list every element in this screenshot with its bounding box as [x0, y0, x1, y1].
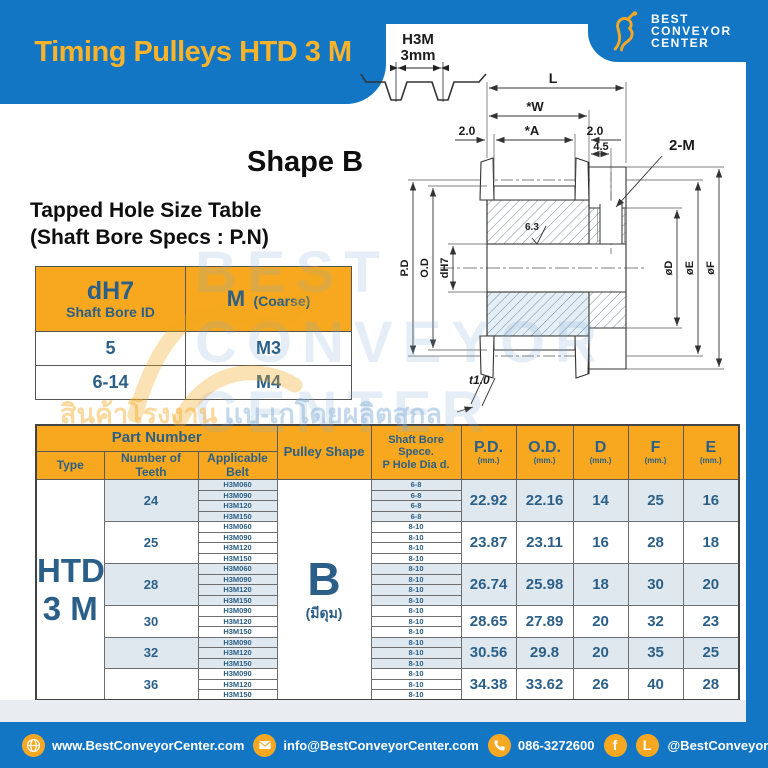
pd-value-cell: 23.87 [461, 522, 516, 564]
table-row: 5 M3 [36, 332, 352, 366]
bore-cell: 8-10 [371, 595, 461, 606]
tapped-hole-table: dH7 Shaft Bore ID M (Coarse) 5 M3 6-14 M… [35, 266, 352, 400]
bore-cell: 6-8 [371, 490, 461, 501]
dim-label-dia-f: øF [705, 261, 717, 275]
belt-cell: H3M090 [198, 606, 277, 617]
bore-cell: 8-10 [371, 669, 461, 680]
f-header: F(mm.) [628, 425, 683, 480]
tapped-col-thread-header: M (Coarse) [186, 267, 352, 332]
profile-name-label: H3M [402, 31, 434, 48]
table-row: HTD3 M24H3M060B(มีดุม)6-822.9222.1614251… [36, 480, 739, 491]
belt-cell: H3M150 [198, 690, 277, 701]
brand-name: BEST CONVEYOR CENTER [651, 13, 732, 49]
od-value-cell: 33.62 [516, 669, 573, 701]
teeth-cell: 32 [104, 637, 198, 669]
bore-cell: 8-10 [371, 648, 461, 659]
table-row: 25H3M0608-1023.8723.11162818 [36, 522, 739, 533]
f-value-cell: 40 [628, 669, 683, 701]
bore-cell: 8-10 [371, 637, 461, 648]
belt-cell: H3M090 [198, 637, 277, 648]
d-value-cell: 20 [573, 637, 628, 669]
belt-cell: H3M090 [198, 669, 277, 680]
footer-bar: www.BestConveyorCenter.com info@BestConv… [0, 722, 768, 768]
belt-cell: H3M150 [198, 511, 277, 522]
dim-label-bore: dH7 [439, 258, 451, 279]
bore-cell: 8-10 [371, 543, 461, 554]
belt-cell: H3M120 [198, 679, 277, 690]
dim-label-tapped-hole: 2-M [669, 137, 695, 154]
dim-label-A: *A [525, 123, 540, 138]
belt-cell: H3M090 [198, 532, 277, 543]
bore-cell: 8-10 [371, 616, 461, 627]
bottom-gray-strip [0, 700, 746, 722]
d-value-cell: 14 [573, 480, 628, 522]
mail-icon [253, 734, 276, 757]
tapped-table-title: Tapped Hole Size Table (Shaft Bore Specs… [30, 197, 269, 251]
pd-header: P.D.(mm.) [461, 425, 516, 480]
f-value-cell: 35 [628, 637, 683, 669]
brand-logo: BEST CONVEYOR CENTER [588, 0, 768, 62]
f-value-cell: 25 [628, 480, 683, 522]
teeth-cell: 25 [104, 522, 198, 564]
dim-label-dia-e: øE [684, 261, 696, 275]
bore-cell: 8-10 [371, 574, 461, 585]
od-value-cell: 25.98 [516, 564, 573, 606]
table-row: 30H3M0908-1028.6527.89203223 [36, 606, 739, 617]
bore-cell: 8-10 [371, 553, 461, 564]
dim-label-L: L [549, 70, 558, 86]
belt-cell: H3M090 [198, 574, 277, 585]
pulley-drawing: L *W *A 2.0 2.0 4.5 2-M P.D O.D dH7 6.3 … [385, 68, 763, 418]
teeth-cell: 24 [104, 480, 198, 522]
bore-spec-header: Shaft Bore Spece. P Hole Dia d. [371, 425, 461, 480]
bore-cell: 8-10 [371, 532, 461, 543]
table-row: 36H3M0908-1034.3833.62264028 [36, 669, 739, 680]
dim-label-right-offset: 2.0 [587, 124, 604, 138]
teeth-cell: 30 [104, 606, 198, 638]
e-value-cell: 18 [683, 522, 739, 564]
footer-social: @BestConveyorCenter [668, 738, 768, 753]
pulley-shape-cell: B(มีดุม) [277, 480, 371, 701]
e-header: E(mm.) [683, 425, 739, 480]
f-value-cell: 32 [628, 606, 683, 638]
type-cell: HTD3 M [36, 480, 104, 701]
line-icon: L [636, 734, 659, 757]
od-value-cell: 23.11 [516, 522, 573, 564]
dim-label-od: O.D [419, 258, 431, 278]
dim-label-surface: 6.3 [525, 222, 539, 233]
belt-cell: H3M120 [198, 616, 277, 627]
f-value-cell: 30 [628, 564, 683, 606]
teeth-header: Number of Teeth [104, 452, 198, 480]
footer-website: www.BestConveyorCenter.com [22, 734, 244, 757]
table-row: 28H3M0608-1026.7425.98183020 [36, 564, 739, 575]
table-row: 32H3M0908-1030.5629.8203525 [36, 637, 739, 648]
pulley-shape-header: Pulley Shape [277, 425, 371, 480]
globe-icon [22, 734, 45, 757]
belt-cell: H3M120 [198, 648, 277, 659]
pd-value-cell: 26.74 [461, 564, 516, 606]
belt-cell: H3M090 [198, 490, 277, 501]
e-value-cell: 25 [683, 637, 739, 669]
type-header: Type [36, 452, 104, 480]
bore-cell: 6-8 [371, 480, 461, 491]
pd-value-cell: 34.38 [461, 669, 516, 701]
pd-value-cell: 30.56 [461, 637, 516, 669]
bore-cell: 8-10 [371, 606, 461, 617]
page-title: Timing Pulleys HTD 3 M [34, 36, 351, 69]
dim-label-left-offset: 2.0 [459, 124, 476, 138]
bore-cell: 6-8 [371, 511, 461, 522]
pd-value-cell: 28.65 [461, 606, 516, 638]
teeth-cell: 36 [104, 669, 198, 701]
dim-label-flange-t: t1.0 [469, 373, 490, 387]
belt-cell: H3M060 [198, 522, 277, 533]
facebook-icon: f [604, 734, 627, 757]
e-value-cell: 16 [683, 480, 739, 522]
d-value-cell: 26 [573, 669, 628, 701]
dim-label-hole-offset: 4.5 [593, 141, 608, 153]
pd-value-cell: 22.92 [461, 480, 516, 522]
footer-email: info@BestConveyorCenter.com [253, 734, 478, 757]
belt-cell: H3M060 [198, 480, 277, 491]
od-value-cell: 29.8 [516, 637, 573, 669]
phone-icon [488, 734, 511, 757]
d-value-cell: 20 [573, 606, 628, 638]
belt-cell: H3M120 [198, 585, 277, 596]
belt-cell: H3M120 [198, 501, 277, 512]
belt-cell: H3M060 [198, 564, 277, 575]
table-row: 6-14 M4 [36, 366, 352, 400]
belt-cell: H3M120 [198, 543, 277, 554]
kangaroo-logo-icon [608, 9, 644, 53]
od-value-cell: 22.16 [516, 480, 573, 522]
belt-cell: H3M150 [198, 627, 277, 638]
f-value-cell: 28 [628, 522, 683, 564]
bore-cell: 8-10 [371, 690, 461, 701]
bore-cell: 8-10 [371, 564, 461, 575]
part-number-header: Part Number [36, 425, 277, 452]
tapped-col-bore-header: dH7 Shaft Bore ID [36, 267, 186, 332]
profile-pitch-label: 3mm [400, 47, 435, 64]
e-value-cell: 28 [683, 669, 739, 701]
d-value-cell: 16 [573, 522, 628, 564]
od-value-cell: 27.89 [516, 606, 573, 638]
bore-cell: 8-10 [371, 627, 461, 638]
belt-cell: H3M150 [198, 658, 277, 669]
belt-cell: H3M150 [198, 553, 277, 564]
d-value-cell: 18 [573, 564, 628, 606]
belt-cell: H3M150 [198, 595, 277, 606]
bore-cell: 6-8 [371, 501, 461, 512]
belt-header: Applicable Belt [198, 452, 277, 480]
dim-label-dia-d: øD [663, 261, 675, 276]
bore-cell: 8-10 [371, 658, 461, 669]
footer-phone: 086-3272600 [488, 734, 595, 757]
bore-cell: 8-10 [371, 585, 461, 596]
d-header: D(mm.) [573, 425, 628, 480]
teeth-cell: 28 [104, 564, 198, 606]
e-value-cell: 20 [683, 564, 739, 606]
od-header: O.D.(mm.) [516, 425, 573, 480]
dim-label-pd: P.D [399, 259, 411, 276]
main-table-body: HTD3 M24H3M060B(มีดุม)6-822.9222.1614251… [36, 480, 739, 701]
bore-cell: 8-10 [371, 679, 461, 690]
dim-label-W: *W [526, 99, 544, 114]
main-spec-table: Part Number Pulley Shape Shaft Bore Spec… [35, 424, 740, 701]
page-banner: Timing Pulleys HTD 3 M [0, 0, 386, 104]
e-value-cell: 23 [683, 606, 739, 638]
bore-cell: 8-10 [371, 522, 461, 533]
